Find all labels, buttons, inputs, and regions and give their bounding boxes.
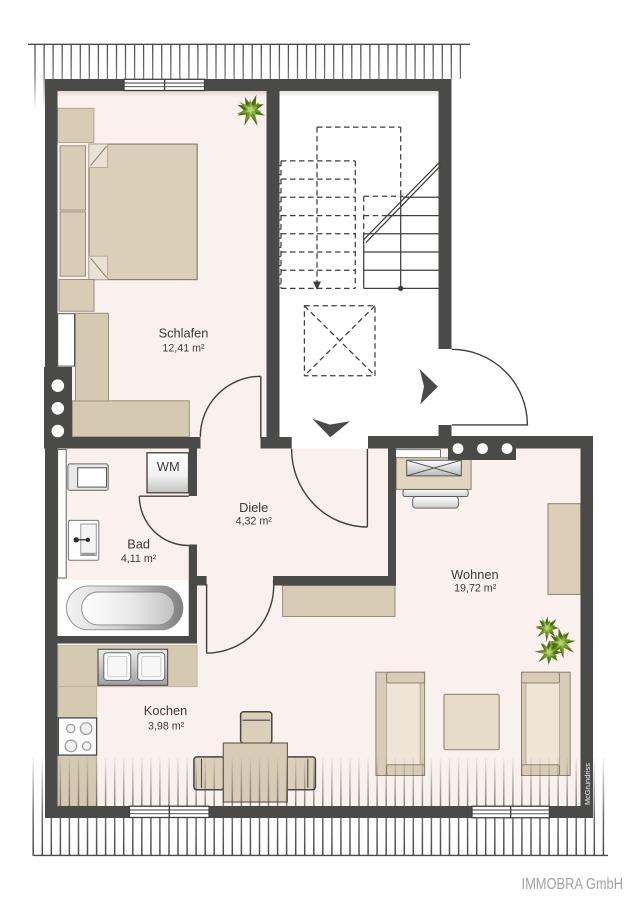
svg-text:3,98 m²: 3,98 m² xyxy=(148,720,185,732)
svg-text:Schlafen: Schlafen xyxy=(159,326,209,341)
svg-text:WM: WM xyxy=(157,459,180,474)
svg-text:IMMOBRA GmbH: IMMOBRA GmbH xyxy=(522,876,624,893)
svg-text:4,32 m²: 4,32 m² xyxy=(236,516,273,528)
svg-text:Kochen: Kochen xyxy=(144,703,187,718)
svg-text:19,72 m²: 19,72 m² xyxy=(454,583,497,595)
svg-text:Wohnen: Wohnen xyxy=(451,567,498,582)
svg-text:4,11 m²: 4,11 m² xyxy=(121,553,157,565)
svg-text:12,41 m²: 12,41 m² xyxy=(162,342,205,354)
svg-text:McGrundriss: McGrundriss xyxy=(583,763,592,805)
svg-text:Diele: Diele xyxy=(239,500,268,515)
svg-text:Bad: Bad xyxy=(127,537,150,552)
